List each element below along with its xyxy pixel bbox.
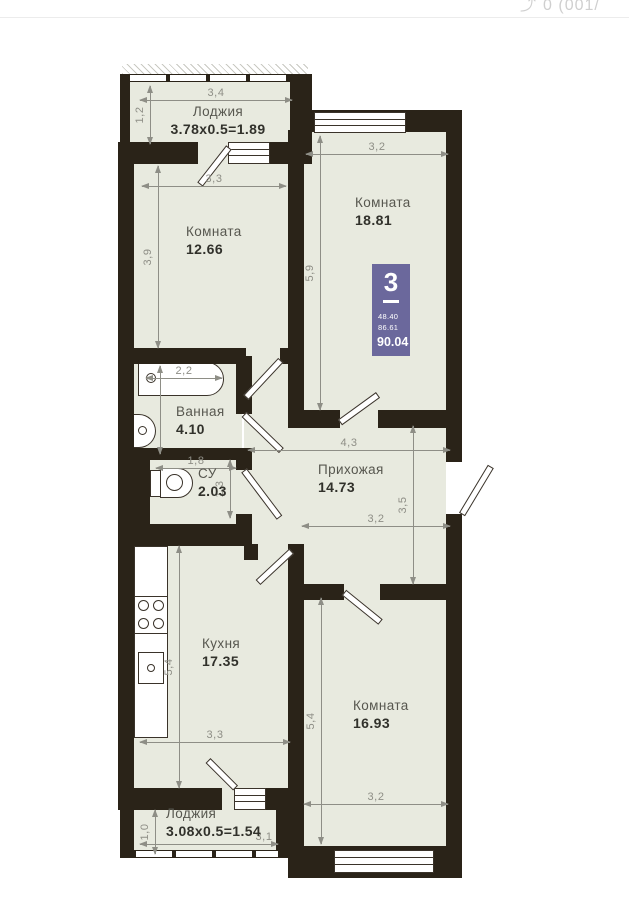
dimension-line: 3,2 — [306, 154, 448, 155]
wall-segment — [378, 410, 462, 428]
room-name: Комната — [355, 195, 411, 212]
dimension-label: 3,4 — [207, 87, 224, 99]
door-entrance — [459, 465, 494, 517]
dimension-line: 5,4 — [321, 598, 322, 844]
dimension-line: 3,5 — [413, 426, 414, 584]
room-area: 3.78x0.5=1.89 — [170, 121, 265, 139]
dimension-line: 3,9 — [158, 166, 159, 348]
room-name: Кухня — [202, 636, 240, 653]
room-label: Кухня17.35 — [202, 636, 240, 670]
room-area: 3.08x0.5=1.54 — [166, 823, 261, 841]
dimension-line: 3,1 — [140, 844, 278, 845]
page: ⤴0 (001/ — [0, 0, 629, 914]
wall-segment — [292, 410, 340, 428]
stove-burner — [138, 618, 149, 629]
badge-area-living: 48.40 — [372, 312, 410, 323]
kitchen-sink-drain — [147, 664, 155, 672]
dimension-label: 5,4 — [163, 658, 175, 675]
dimension-label: 3,9 — [142, 248, 154, 265]
stove-burner — [153, 600, 164, 611]
wall-segment — [118, 348, 246, 364]
dimension-line: 3,3 — [140, 742, 290, 743]
room-name: СУ — [198, 466, 227, 483]
room-label: Комната16.93 — [353, 698, 409, 732]
room-label: Лоджия3.78x0.5=1.89 — [170, 104, 265, 138]
room-label: Комната12.66 — [186, 224, 242, 258]
dimension-label: 3,2 — [368, 141, 385, 153]
window — [334, 850, 434, 873]
room-name: Комната — [186, 224, 242, 241]
dimension-line: 4,3 — [248, 450, 450, 451]
bathroom-sink-drain — [138, 426, 147, 435]
room-label: Комната18.81 — [355, 195, 411, 229]
room-name: Прихожая — [318, 462, 384, 479]
dimension-label: 1,2 — [134, 106, 146, 123]
dimension-line: 1,0 — [155, 810, 156, 854]
wall-segment — [120, 788, 134, 858]
room-area: 4.10 — [176, 421, 225, 439]
dimension-line: 3,2 — [302, 526, 450, 527]
dimension-line — [160, 366, 161, 454]
dimension-label: 5,4 — [305, 712, 317, 729]
dimension-label: 3,3 — [205, 173, 222, 185]
dimension-label: 3,5 — [397, 496, 409, 513]
dimension-line: 1,3 — [230, 460, 231, 518]
wall-segment — [120, 74, 130, 146]
window — [314, 112, 406, 133]
wall-segment — [280, 348, 304, 364]
dimension-line: 3,2 — [304, 804, 448, 805]
wall-segment — [118, 524, 250, 546]
stove-burner — [138, 600, 149, 611]
wall-segment — [380, 584, 462, 600]
badge-area-secondary: 86.61 — [372, 323, 410, 334]
apartment-info-badge: 3 48.40 86.61 90.04 — [372, 264, 410, 356]
dimension-line: 5,4 — [179, 546, 180, 788]
exterior-hatch — [122, 64, 308, 74]
room-area: 14.73 — [318, 479, 384, 497]
kitchen-counter — [134, 546, 168, 738]
entrance-opening — [446, 462, 462, 514]
loggia-top-glazing — [126, 74, 292, 82]
room-area: 17.35 — [202, 653, 240, 671]
dimension-label: 1,0 — [139, 823, 151, 840]
badge-room-count: 3 — [372, 269, 410, 295]
wall-segment — [288, 130, 304, 428]
dimension-label: 4,3 — [340, 437, 357, 449]
dimension-label: 5,9 — [304, 264, 316, 281]
dimension-label: 3,2 — [367, 791, 384, 803]
dimension-line: 2,2 — [146, 378, 222, 379]
dimension-line: 5,9 — [320, 136, 321, 410]
dimension-label: 3,2 — [367, 513, 384, 525]
room-area: 16.93 — [353, 715, 409, 733]
room-area: 18.81 — [355, 212, 411, 230]
window — [228, 142, 270, 164]
stove-burner — [153, 618, 164, 629]
dimension-line: 3,4 — [140, 100, 292, 101]
room-label: Лоджия3.08x0.5=1.54 — [166, 806, 261, 840]
room-area: 12.66 — [186, 241, 242, 259]
dimension-label: 2,2 — [175, 365, 192, 377]
wall-segment — [244, 544, 258, 560]
room-label: Прихожая14.73 — [318, 462, 384, 496]
dimension-line: 1,2 — [150, 86, 151, 144]
room-label: СУ2.03 — [198, 466, 227, 500]
badge-area-total: 90.04 — [372, 335, 410, 349]
room-area: 2.03 — [198, 483, 227, 501]
dimension-line: 3,3 — [142, 186, 286, 187]
badge-underline — [383, 300, 399, 303]
wall-segment — [118, 448, 150, 526]
floor-plan: 3 48.40 86.61 90.04 3,41,23,33,93,25,92,… — [0, 0, 629, 914]
room-name: Лоджия — [166, 806, 261, 823]
dimension-label: 3,3 — [206, 729, 223, 741]
toilet-bowl-circle — [166, 474, 183, 491]
room-name: Ванная — [176, 404, 225, 421]
room-name: Комната — [353, 698, 409, 715]
wall-segment — [236, 356, 252, 414]
room-label: Ванная4.10 — [176, 404, 225, 438]
room-name: Лоджия — [170, 104, 265, 121]
